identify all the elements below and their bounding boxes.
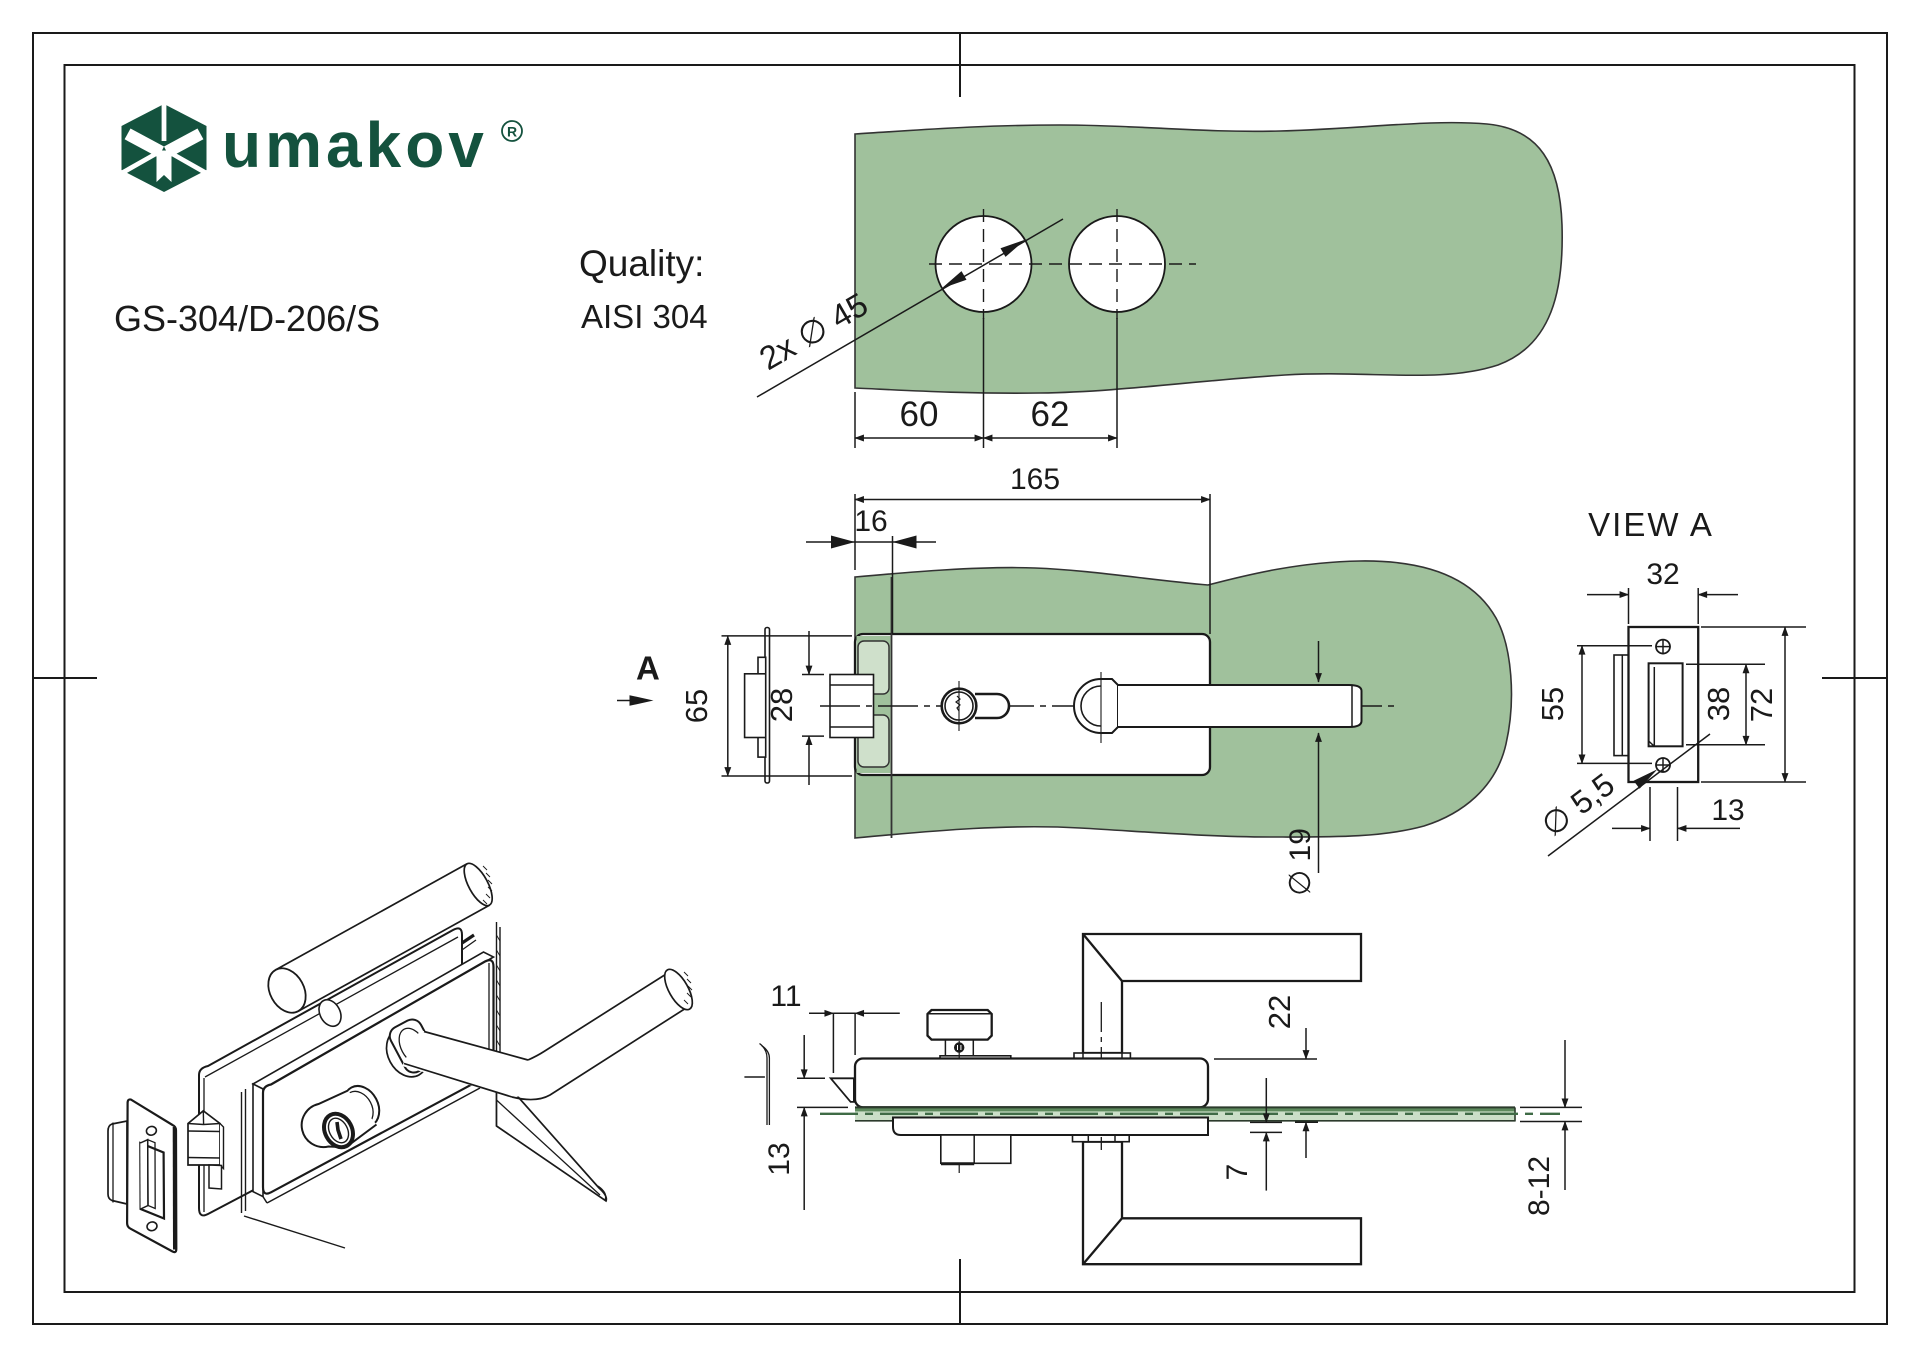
svg-text:28: 28 (764, 688, 799, 722)
svg-text:22: 22 (1262, 995, 1297, 1029)
svg-text:60: 60 (900, 395, 939, 434)
svg-text:165: 165 (1010, 463, 1060, 496)
svg-text:11: 11 (770, 980, 801, 1013)
svg-text:13: 13 (1711, 794, 1744, 827)
svg-text:R: R (507, 124, 517, 140)
svg-text:72: 72 (1744, 688, 1779, 722)
svg-text:AISI 304: AISI 304 (581, 298, 708, 335)
svg-text:A: A (636, 650, 660, 687)
svg-text:65: 65 (679, 689, 714, 723)
svg-text:8-12: 8-12 (1523, 1156, 1556, 1216)
svg-text:∅ 19: ∅ 19 (1284, 828, 1317, 896)
svg-text:GS-304/D-206/S: GS-304/D-206/S (114, 298, 380, 339)
svg-text:Quality:: Quality: (579, 243, 704, 284)
svg-text:umakov: umakov (222, 109, 488, 181)
svg-text:7: 7 (1221, 1164, 1254, 1181)
svg-text:32: 32 (1646, 558, 1679, 591)
svg-text:38: 38 (1701, 687, 1736, 721)
svg-text:13: 13 (763, 1142, 796, 1175)
svg-text:16: 16 (854, 505, 887, 538)
svg-text:62: 62 (1031, 395, 1070, 434)
svg-text:55: 55 (1535, 687, 1570, 721)
svg-text:VIEW A: VIEW A (1588, 506, 1714, 543)
